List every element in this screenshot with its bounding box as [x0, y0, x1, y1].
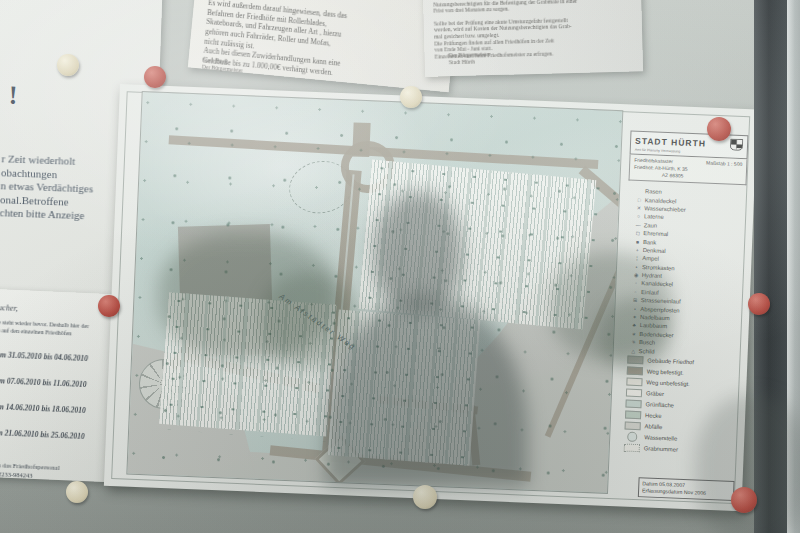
legend-symbol-icon: ✳	[628, 339, 639, 345]
legend-symbol-icon: •	[629, 305, 640, 311]
map-title-and-legend: STADT HÜRTH Amt für Planung Vermessung F…	[616, 131, 749, 503]
exclamation-mark: !	[8, 81, 18, 111]
push-pin	[57, 54, 79, 76]
agency-name: STADT HÜRTH	[635, 136, 706, 149]
legend-label: Grünfläche	[645, 402, 674, 409]
legend-label: Schild	[639, 348, 655, 355]
legend-label: Einlauf	[641, 289, 659, 296]
grave-field-grid	[328, 310, 481, 466]
legend-symbol-icon: ○	[633, 213, 644, 219]
map-drawing-area: Am Alstädter Weg	[126, 91, 623, 494]
legend-symbol-icon: +	[632, 247, 643, 253]
push-pin	[707, 117, 731, 141]
map-scale: Maßstab 1 : 500	[706, 160, 742, 168]
display-case-edge	[787, 0, 800, 533]
map-date-box: Datum 05.03.2007 Erfassungsdatum Nov 200…	[638, 477, 735, 501]
legend-swatch	[625, 400, 641, 409]
legend-label: Absperrpfosten	[640, 306, 680, 314]
push-pin	[400, 86, 422, 108]
cemetery-map-sheet: Am Alstädter Weg STADT HÜRTH Amt für Pla…	[104, 84, 758, 511]
legend-label: Hecke	[645, 413, 662, 420]
display-case-frame	[754, 0, 787, 533]
push-pin	[413, 485, 437, 509]
map-legend: Rasen □ Kanaldeckel ✕ Wasserschieber ○	[618, 186, 747, 457]
push-pin	[144, 66, 166, 88]
coat-of-arms-icon	[730, 139, 743, 152]
legend-label: Weg unbefestigt.	[646, 380, 690, 388]
legend-label: Abfälle	[645, 424, 663, 431]
legend-label: Gräber	[646, 391, 664, 398]
legend-swatch	[625, 422, 641, 431]
legend-symbol-icon: ♣	[629, 322, 640, 328]
inspection-signature: Der Bürgermeister Stadt Hürth	[449, 51, 491, 66]
legend-label: Rasen	[645, 188, 662, 195]
legend-symbol-icon: ◉	[631, 272, 642, 278]
legend-label: Laubbaum	[640, 322, 668, 329]
legend-symbol-icon: ▫	[630, 289, 641, 295]
legend-symbol-icon: ◻	[632, 230, 643, 236]
push-pin	[98, 295, 120, 317]
legend-swatch	[627, 356, 643, 365]
push-pin	[731, 487, 757, 513]
legend-label: Grabnummer	[644, 446, 678, 453]
legend-swatch	[624, 444, 640, 453]
legend-symbol-icon: □	[634, 196, 645, 202]
legend-label: Nadelbaum	[640, 314, 670, 321]
legend-symbol-icon: △	[628, 347, 639, 353]
legend-label: Zaun	[644, 222, 657, 229]
legend-label: Bodendecker	[639, 331, 673, 338]
legend-symbol-icon: ✕	[633, 205, 644, 211]
legend-label: Wasserstelle	[644, 435, 677, 442]
push-pin	[66, 481, 88, 503]
legend-label: Busch	[639, 339, 655, 346]
legend-label: Hydrant	[642, 272, 663, 279]
legend-symbol-icon: ▪	[631, 263, 642, 269]
legend-swatch	[626, 378, 642, 387]
legend-swatch	[626, 389, 642, 398]
legend-swatch	[627, 432, 637, 442]
legend-symbol-icon: ¦	[631, 255, 642, 261]
legend-label: Laterne	[644, 214, 664, 221]
legend-label: Weg befestigt.	[647, 369, 684, 376]
legend-swatch	[627, 367, 643, 376]
legend-label: Ehrenmal	[643, 230, 668, 237]
grave-field-grid	[358, 159, 596, 329]
inspection-notice-paper: und Verwahrung kömt, im Falle einer Bean…	[423, 0, 643, 77]
legend-label: Ampel	[642, 255, 659, 262]
legend-symbol-icon: ◦	[630, 280, 641, 286]
legend-symbol-icon: ✶	[629, 314, 640, 320]
map-info-block: Friedhofskataster Maßstab 1 : 500 Friedh…	[629, 155, 748, 186]
legend-label: Gebäude Friedhof	[647, 358, 694, 366]
legend-label: Stromkasten	[642, 264, 675, 271]
legend-symbol-icon: ⊞	[630, 297, 641, 303]
legend-symbol-icon: ■	[632, 238, 643, 244]
legend-label: Denkmal	[643, 247, 666, 254]
push-pin	[748, 293, 770, 315]
signature-line: Stadt Hürth	[449, 58, 491, 66]
legend-swatch	[625, 411, 641, 420]
legend-label: Kanaldeckel	[641, 281, 673, 288]
legend-label: Bank	[643, 239, 656, 246]
legend-symbol-icon: —	[633, 221, 644, 227]
legend-label: Kanaldeckel	[645, 197, 677, 204]
legend-symbol-icon: ∗	[628, 330, 639, 336]
